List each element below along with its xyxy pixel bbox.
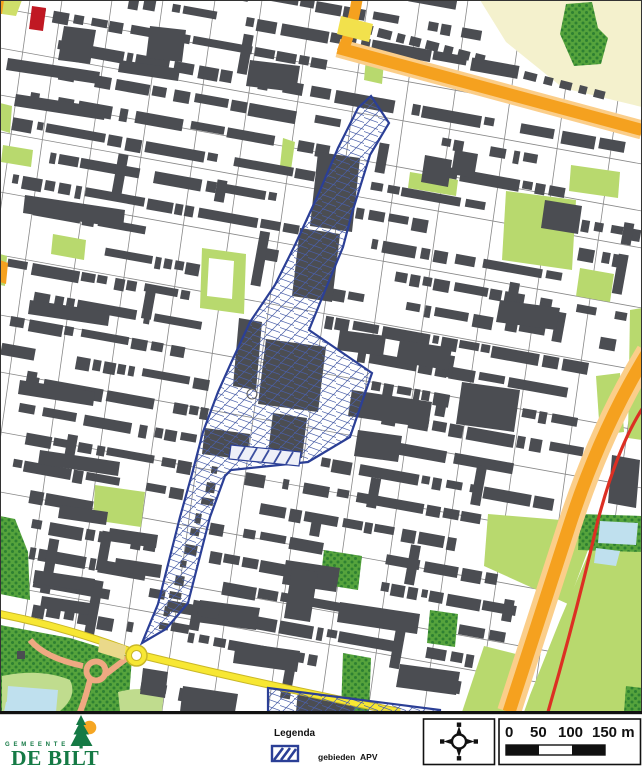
svg-text:0: 0 xyxy=(505,724,513,741)
svg-text:150 m: 150 m xyxy=(592,724,635,741)
svg-text:100: 100 xyxy=(558,724,583,741)
svg-text:Legenda: Legenda xyxy=(274,728,316,739)
svg-text:DE BILT: DE BILT xyxy=(11,746,99,770)
svg-text:50: 50 xyxy=(530,724,547,741)
svg-text:gebieden APV: gebieden APV xyxy=(318,752,378,762)
